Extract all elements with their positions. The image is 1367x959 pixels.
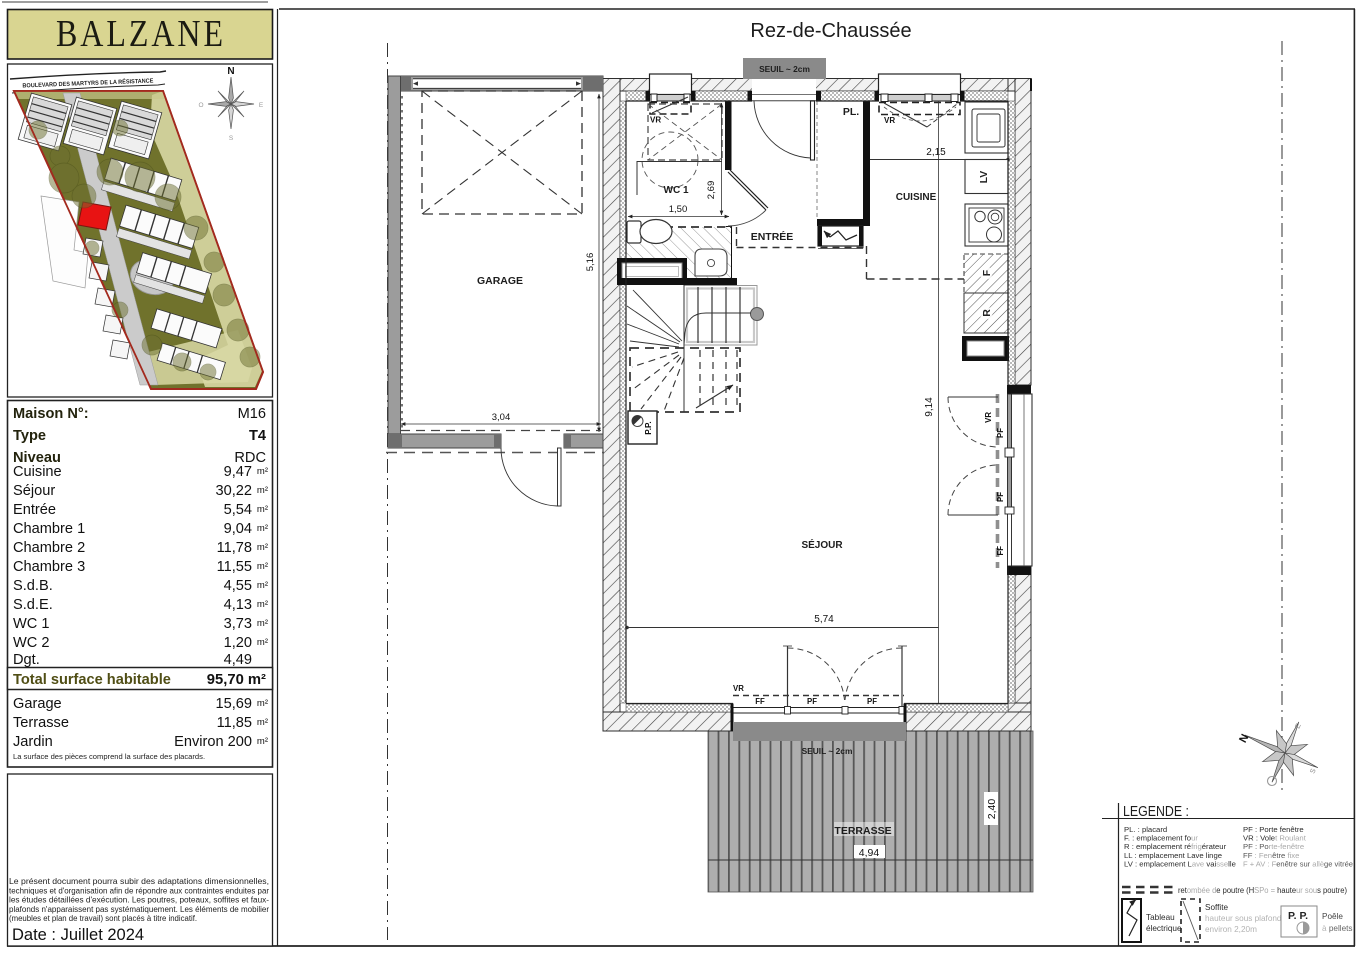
svg-text:ENTRÉE: ENTRÉE — [751, 230, 794, 243]
svg-text:m²: m² — [257, 561, 268, 572]
svg-text:R: R — [981, 309, 993, 317]
svg-text:PF: PF — [996, 492, 1005, 502]
svg-text:VR: VR — [984, 412, 993, 423]
svg-text:S: S — [229, 135, 234, 142]
svg-text:Dgt.: Dgt. — [13, 652, 40, 668]
svg-text:PL.: PL. — [843, 106, 859, 118]
svg-text:O: O — [198, 102, 203, 109]
svg-text:Le présent document pourra sub: Le présent document pourra subir des ada… — [9, 877, 269, 886]
svg-text:GARAGE: GARAGE — [477, 275, 523, 287]
svg-text:3,04: 3,04 — [492, 412, 511, 423]
svg-text:PF: PF — [996, 428, 1005, 438]
svg-text:à pellets: à pellets — [1322, 924, 1353, 933]
svg-text:SEUIL ~ 2cm: SEUIL ~ 2cm — [759, 64, 810, 74]
svg-text:m²: m² — [257, 580, 268, 591]
svg-text:9,47: 9,47 — [224, 464, 252, 480]
svg-text:électrique: électrique — [1146, 924, 1182, 933]
svg-text:Maison N°:: Maison N°: — [13, 406, 89, 422]
svg-text:retombée de poutre (HSPo = hau: retombée de poutre (HSPo = hauteur sous … — [1178, 886, 1347, 895]
svg-text:5,74: 5,74 — [814, 614, 834, 625]
svg-text:Rez-de-Chaussée: Rez-de-Chaussée — [750, 20, 911, 42]
svg-text:P.P.: P.P. — [644, 421, 653, 434]
svg-text:Entrée: Entrée — [13, 502, 56, 518]
svg-text:30,22: 30,22 — [215, 483, 252, 499]
svg-text:4,49: 4,49 — [224, 652, 252, 668]
svg-text:les études détaillées d'exécut: les études détaillées d'exécution. Les p… — [9, 896, 269, 905]
svg-text:4,13: 4,13 — [224, 597, 252, 613]
svg-text:Date : Juillet 2024: Date : Juillet 2024 — [12, 926, 144, 944]
svg-text:Chambre 2: Chambre 2 — [13, 540, 85, 556]
svg-text:VR: VR — [884, 116, 895, 125]
svg-text:2,40: 2,40 — [986, 799, 998, 820]
svg-text:11,85: 11,85 — [217, 715, 252, 731]
svg-text:LV: LV — [978, 171, 990, 184]
svg-text:11,78: 11,78 — [217, 540, 252, 556]
svg-text:F: F — [981, 269, 993, 276]
svg-text:E: E — [259, 102, 264, 109]
svg-text:5,16: 5,16 — [585, 253, 596, 272]
svg-text:Garage: Garage — [13, 696, 62, 712]
svg-text:T4: T4 — [249, 428, 267, 444]
svg-text:FF: FF — [755, 697, 765, 706]
svg-text:m²: m² — [257, 698, 268, 709]
svg-text:N: N — [227, 66, 234, 77]
svg-text:m²: m² — [257, 637, 268, 648]
svg-text:Chambre 1: Chambre 1 — [13, 521, 85, 537]
svg-text:WC 1: WC 1 — [13, 616, 49, 632]
svg-text:m²: m² — [257, 485, 268, 496]
svg-text:Tableau: Tableau — [1146, 913, 1175, 922]
svg-text:5,54: 5,54 — [224, 502, 252, 518]
svg-text:m²: m² — [257, 618, 268, 629]
svg-text:m²: m² — [257, 504, 268, 515]
svg-text:plafonds n'apparaissent pas sy: plafonds n'apparaissent pas systématique… — [9, 905, 269, 914]
svg-text:TERRASSE: TERRASSE — [834, 825, 891, 837]
svg-text:Jardin: Jardin — [13, 734, 53, 750]
svg-text:m²: m² — [257, 717, 268, 728]
svg-text:SEUIL ~ 2cm: SEUIL ~ 2cm — [802, 746, 853, 756]
svg-text:FF: FF — [996, 546, 1005, 556]
svg-text:m²: m² — [257, 466, 268, 477]
svg-text:Total surface habitable: Total surface habitable — [13, 672, 171, 688]
svg-text:S.d.E.: S.d.E. — [13, 597, 53, 613]
svg-text:4,55: 4,55 — [224, 578, 252, 594]
svg-text:4,94: 4,94 — [859, 847, 880, 859]
svg-text:hauteur sous plafond: hauteur sous plafond — [1205, 914, 1282, 923]
svg-text:(meubles et plan de travail) s: (meubles et plan de travail) sont placés… — [9, 914, 197, 923]
svg-text:2,69: 2,69 — [706, 181, 717, 200]
svg-text:3,73: 3,73 — [224, 616, 252, 632]
svg-text:WC 2: WC 2 — [13, 635, 49, 651]
svg-text:2,15: 2,15 — [926, 147, 946, 158]
svg-text:m²: m² — [257, 542, 268, 553]
svg-text:BALZANE: BALZANE — [56, 13, 226, 55]
svg-text:15,69: 15,69 — [215, 696, 252, 712]
svg-text:1,20: 1,20 — [224, 635, 252, 651]
svg-text:LEGENDE :: LEGENDE : — [1123, 803, 1189, 820]
svg-text:Environ 200: Environ 200 — [174, 734, 252, 750]
svg-text:environ 2,20m: environ 2,20m — [1205, 925, 1257, 934]
svg-text:m²: m² — [257, 599, 268, 610]
svg-text:VR: VR — [650, 116, 661, 125]
svg-text:VR: VR — [733, 684, 744, 693]
svg-text:PF: PF — [807, 697, 817, 706]
svg-text:CUISINE: CUISINE — [896, 192, 937, 203]
svg-text:95,70 m²: 95,70 m² — [207, 672, 266, 688]
svg-text:Chambre 3: Chambre 3 — [13, 559, 85, 575]
svg-text:Séjour: Séjour — [13, 483, 55, 499]
svg-text:Type: Type — [13, 428, 46, 444]
svg-text:Cuisine: Cuisine — [13, 464, 62, 480]
svg-text:M16: M16 — [238, 406, 266, 422]
svg-text:Soffite: Soffite — [1205, 903, 1229, 912]
svg-text:LV : emplacement Lave vaissell: LV : emplacement Lave vaisselle — [1124, 859, 1236, 868]
svg-text:9,14: 9,14 — [924, 397, 935, 417]
svg-text:Poêle: Poêle — [1322, 912, 1343, 921]
svg-text:P. P.: P. P. — [1288, 910, 1308, 922]
svg-text:11,55: 11,55 — [217, 559, 252, 575]
svg-text:m²: m² — [257, 736, 268, 747]
svg-text:PF: PF — [867, 697, 877, 706]
svg-text:S.d.B.: S.d.B. — [13, 578, 53, 594]
svg-text:F + AV : Fenêtre sur allège vi: F + AV : Fenêtre sur allège vitrée — [1243, 859, 1353, 868]
svg-text:La surface des pièces comprend: La surface des pièces comprend la surfac… — [13, 752, 205, 761]
svg-text:WC 1: WC 1 — [664, 185, 689, 196]
svg-text:Terrasse: Terrasse — [13, 715, 69, 731]
svg-text:m²: m² — [257, 523, 268, 534]
svg-text:1,50: 1,50 — [669, 204, 688, 215]
svg-text:9,04: 9,04 — [224, 521, 252, 537]
svg-text:SÉJOUR: SÉJOUR — [801, 538, 843, 551]
svg-text:techniques et d'organisation a: techniques et d'organisation afin de rép… — [9, 886, 269, 895]
